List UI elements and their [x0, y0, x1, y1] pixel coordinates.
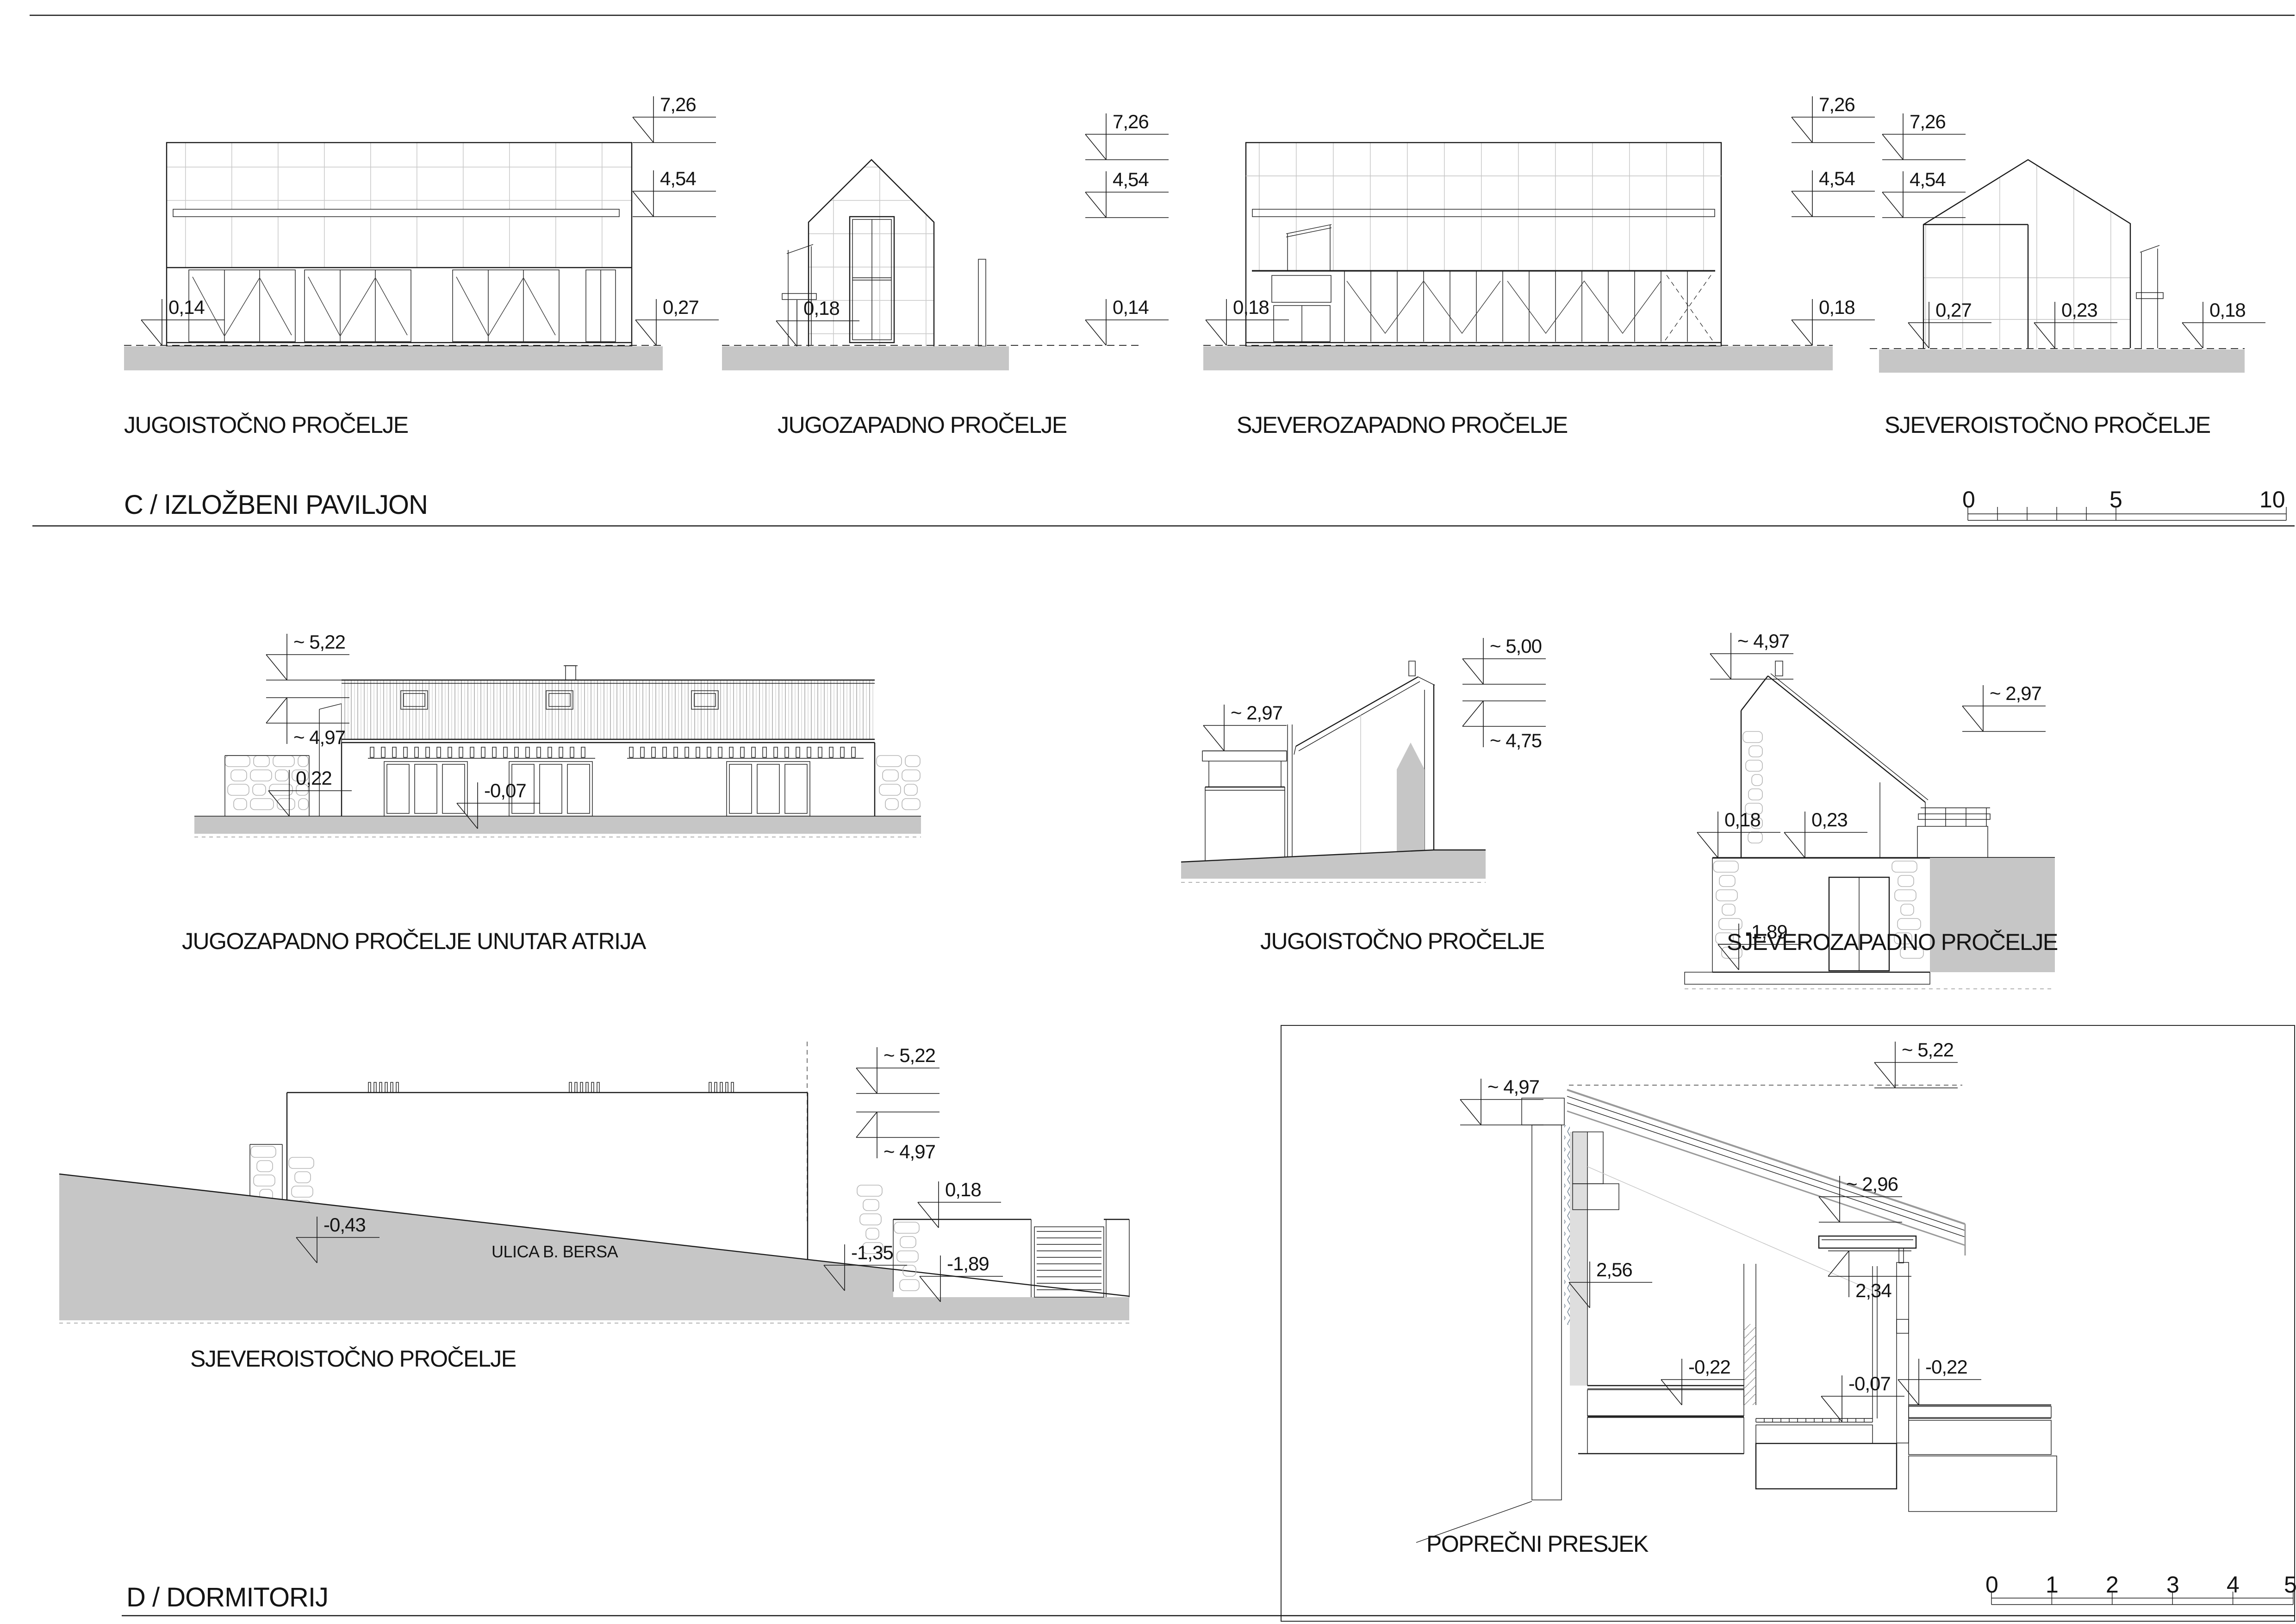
dimension-value: 7,26 [660, 94, 696, 115]
elevation-d-sjeveroistocno: ULICA B. BERSA ~ 5,22 ~ 4,97 -0,43 -1,35… [59, 1042, 1132, 1323]
elevation-label: JUGOZAPADNO PROČELJE [778, 412, 1067, 438]
view-label: JUGOISTOČNO PROČELJE [1260, 928, 1544, 954]
dimension-value: ~ 5,00 [1490, 635, 1542, 657]
dimension-value: -0,22 [1688, 1356, 1730, 1378]
pergola-ticks [370, 747, 585, 757]
scale-tick-label: 3 [2166, 1572, 2179, 1598]
roof-ticks [709, 1082, 734, 1093]
dimension-value: 0,18 [803, 297, 840, 319]
level-marker: 0,22 [268, 767, 352, 816]
level-marker: ~ 4,97 [266, 698, 349, 748]
scale-tick-label: 10 [2259, 487, 2285, 512]
hedge [1397, 743, 1425, 860]
view-label: SJEVEROZAPADNO PROČELJE [1727, 929, 2058, 955]
railing-posts [1925, 808, 1986, 826]
section-c: 7,26 4,54 0,27 0,14 7,26 4,54 [32, 94, 2295, 526]
level-marker: ~ 4,97 [856, 1112, 940, 1162]
scale-tick-label: 0 [1962, 487, 1975, 512]
level-marker: 0,18 [1792, 296, 1875, 345]
level-marker: 0,23 [1784, 809, 1867, 858]
level-marker: 0,14 [141, 296, 224, 345]
level-marker: ~ 2,97 [1203, 702, 1287, 751]
flag-post [782, 244, 816, 345]
scale-tick-label: 5 [2284, 1572, 2296, 1598]
dimension-value: 2,34 [1855, 1280, 1892, 1301]
stone-wall [877, 756, 920, 810]
dimension-value: 7,26 [1113, 111, 1149, 132]
atrium-doors [384, 762, 810, 816]
level-marker: -0,07 [1821, 1373, 1904, 1422]
dimension-value: 0,22 [296, 767, 332, 789]
dimension-value: -1,35 [851, 1242, 893, 1263]
dimension-value: 0,23 [1811, 809, 1848, 831]
sheet-canvas: 7,26 4,54 0,27 0,14 7,26 4,54 [0, 0, 2296, 1624]
level-marker: 0,18 [1206, 296, 1289, 345]
level-marker: 7,26 [1792, 94, 1875, 143]
dimension-value: ~ 4,97 [293, 726, 345, 748]
dimension-value: 0,18 [1819, 296, 1855, 318]
dimension-value: 0,18 [945, 1179, 981, 1200]
gate-slats [1037, 1231, 1101, 1290]
dimension-value: 0,27 [663, 296, 699, 318]
view-label: JUGOZAPADNO PROČELJE UNUTAR ATRIJA [182, 928, 647, 954]
dimension-value: ~ 4,75 [1490, 730, 1542, 751]
elevation-label: JUGOISTOČNO PROČELJE [124, 412, 408, 438]
drawing-sheet: 7,26 4,54 0,27 0,14 7,26 4,54 [0, 0, 2296, 1624]
dimension-value: 0,18 [1233, 296, 1269, 318]
level-marker: ~ 4,75 [1462, 701, 1546, 751]
section-d: ~ 5,22 ~ 4,97 0,22 -0,07 JUGOZAPADNO PRO… [59, 630, 2296, 1621]
dimension-value: 4,54 [660, 168, 696, 189]
dimension-value: ~ 2,97 [1231, 702, 1282, 724]
level-marker: 0,18 [918, 1179, 1001, 1228]
elevation-c-jugozapadno: 7,26 4,54 0,18 0,14 [722, 111, 1169, 370]
dimension-value: -0,07 [1848, 1373, 1891, 1394]
floor-tiles [1756, 1418, 1873, 1422]
dimension-value: ~ 5,22 [1902, 1039, 1954, 1061]
elevation-label: SJEVEROZAPADNO PROČELJE [1237, 412, 1568, 438]
dimension-value: ~ 5,22 [884, 1044, 935, 1066]
glass-mullions [1344, 271, 1687, 342]
scale-bar-c: 0 5 10 [1962, 487, 2286, 520]
dimension-value: 0,23 [2061, 299, 2097, 321]
level-marker: 0,18 [2182, 299, 2265, 348]
level-marker: ~ 5,22 [856, 1044, 940, 1093]
dimension-value: 0,14 [168, 296, 205, 318]
dimension-value: 0,18 [1724, 809, 1761, 831]
level-marker: -0,22 [1898, 1356, 1981, 1405]
level-marker: ~ 5,00 [1462, 635, 1546, 684]
level-marker: 4,54 [1792, 168, 1875, 217]
level-marker: 7,26 [1882, 111, 1966, 160]
dimension-value: 7,26 [1819, 94, 1855, 115]
street-name: ULICA B. BERSA [492, 1242, 618, 1261]
view-label: SJEVEROISTOČNO PROČELJE [190, 1346, 516, 1372]
dimension-value: -0,07 [484, 780, 526, 801]
level-marker: ~ 4,97 [1710, 630, 1793, 679]
level-marker: ~ 5,22 [266, 631, 349, 680]
pergola-ticks [629, 747, 855, 757]
stone-pier [894, 1222, 919, 1291]
dimension-value: ~ 4,97 [884, 1141, 935, 1162]
level-marker: 0,18 [1697, 809, 1780, 858]
dimension-value: ~ 4,97 [1487, 1076, 1539, 1098]
scale-tick-label: 0 [1985, 1572, 1998, 1598]
dimension-value: 4,54 [1819, 168, 1855, 189]
dimension-value: 2,56 [1596, 1259, 1632, 1280]
elevation-d-jugoistocno: ~ 2,97 ~ 5,00 ~ 4,75 [1181, 635, 1546, 882]
elevation-c-sjeveroistocno: 7,26 4,54 0,27 0,23 0,18 [1870, 111, 2265, 373]
elevation-d-atrij: ~ 5,22 ~ 4,97 0,22 -0,07 [194, 631, 921, 864]
dimension-value: 0,18 [2209, 299, 2246, 321]
elevation-label: SJEVEROISTOČNO PROČELJE [1885, 412, 2210, 438]
elevation-c-jugoistocno: 7,26 4,54 0,27 0,14 [124, 94, 719, 370]
roof-ticks [569, 1082, 599, 1093]
dimension-value: 0,14 [1113, 296, 1149, 318]
section-d-title: D / DORMITORIJ [126, 1582, 328, 1612]
view-label: POPREČNI PRESJEK [1426, 1531, 1649, 1557]
dimension-value: ~ 4,97 [1737, 630, 1789, 652]
dimension-value: 4,54 [1113, 169, 1149, 190]
folding-doors [189, 270, 616, 342]
level-marker: 4,54 [633, 168, 716, 217]
dimension-value: 0,27 [1935, 299, 1972, 321]
elevation-c-sjeverozapadno: 7,26 4,54 0,18 0,18 [1203, 94, 1875, 370]
dimension-value: -0,22 [1925, 1356, 1967, 1378]
dimension-value: -1,89 [947, 1253, 989, 1274]
level-marker: ~ 2,97 [1962, 682, 2046, 731]
level-marker: 7,26 [633, 94, 716, 143]
scale-bar-d: 0 1 2 3 4 5 [1985, 1572, 2296, 1605]
section-c-title: C / IZLOŽBENI PAVILJON [124, 490, 428, 520]
dimension-value: -0,43 [324, 1214, 366, 1236]
dimension-value: ~ 2,97 [1990, 682, 2041, 704]
dimension-value: 4,54 [1910, 169, 1946, 190]
dimension-value: ~ 5,22 [293, 631, 345, 653]
roof-ticks [368, 1082, 398, 1093]
level-marker: 0,14 [1085, 296, 1169, 345]
dimension-value: ~ 2,96 [1846, 1173, 1898, 1195]
level-marker: 7,26 [1085, 111, 1169, 160]
level-marker: -0,22 [1661, 1356, 1744, 1405]
dimension-value: 7,26 [1910, 111, 1946, 132]
level-marker: ~ 5,22 [1874, 1039, 1958, 1088]
level-marker: ~ 4,97 [1460, 1076, 1543, 1125]
flag-post [2136, 245, 2163, 348]
level-marker: 4,54 [1085, 169, 1169, 218]
level-marker: 0,27 [635, 296, 719, 345]
